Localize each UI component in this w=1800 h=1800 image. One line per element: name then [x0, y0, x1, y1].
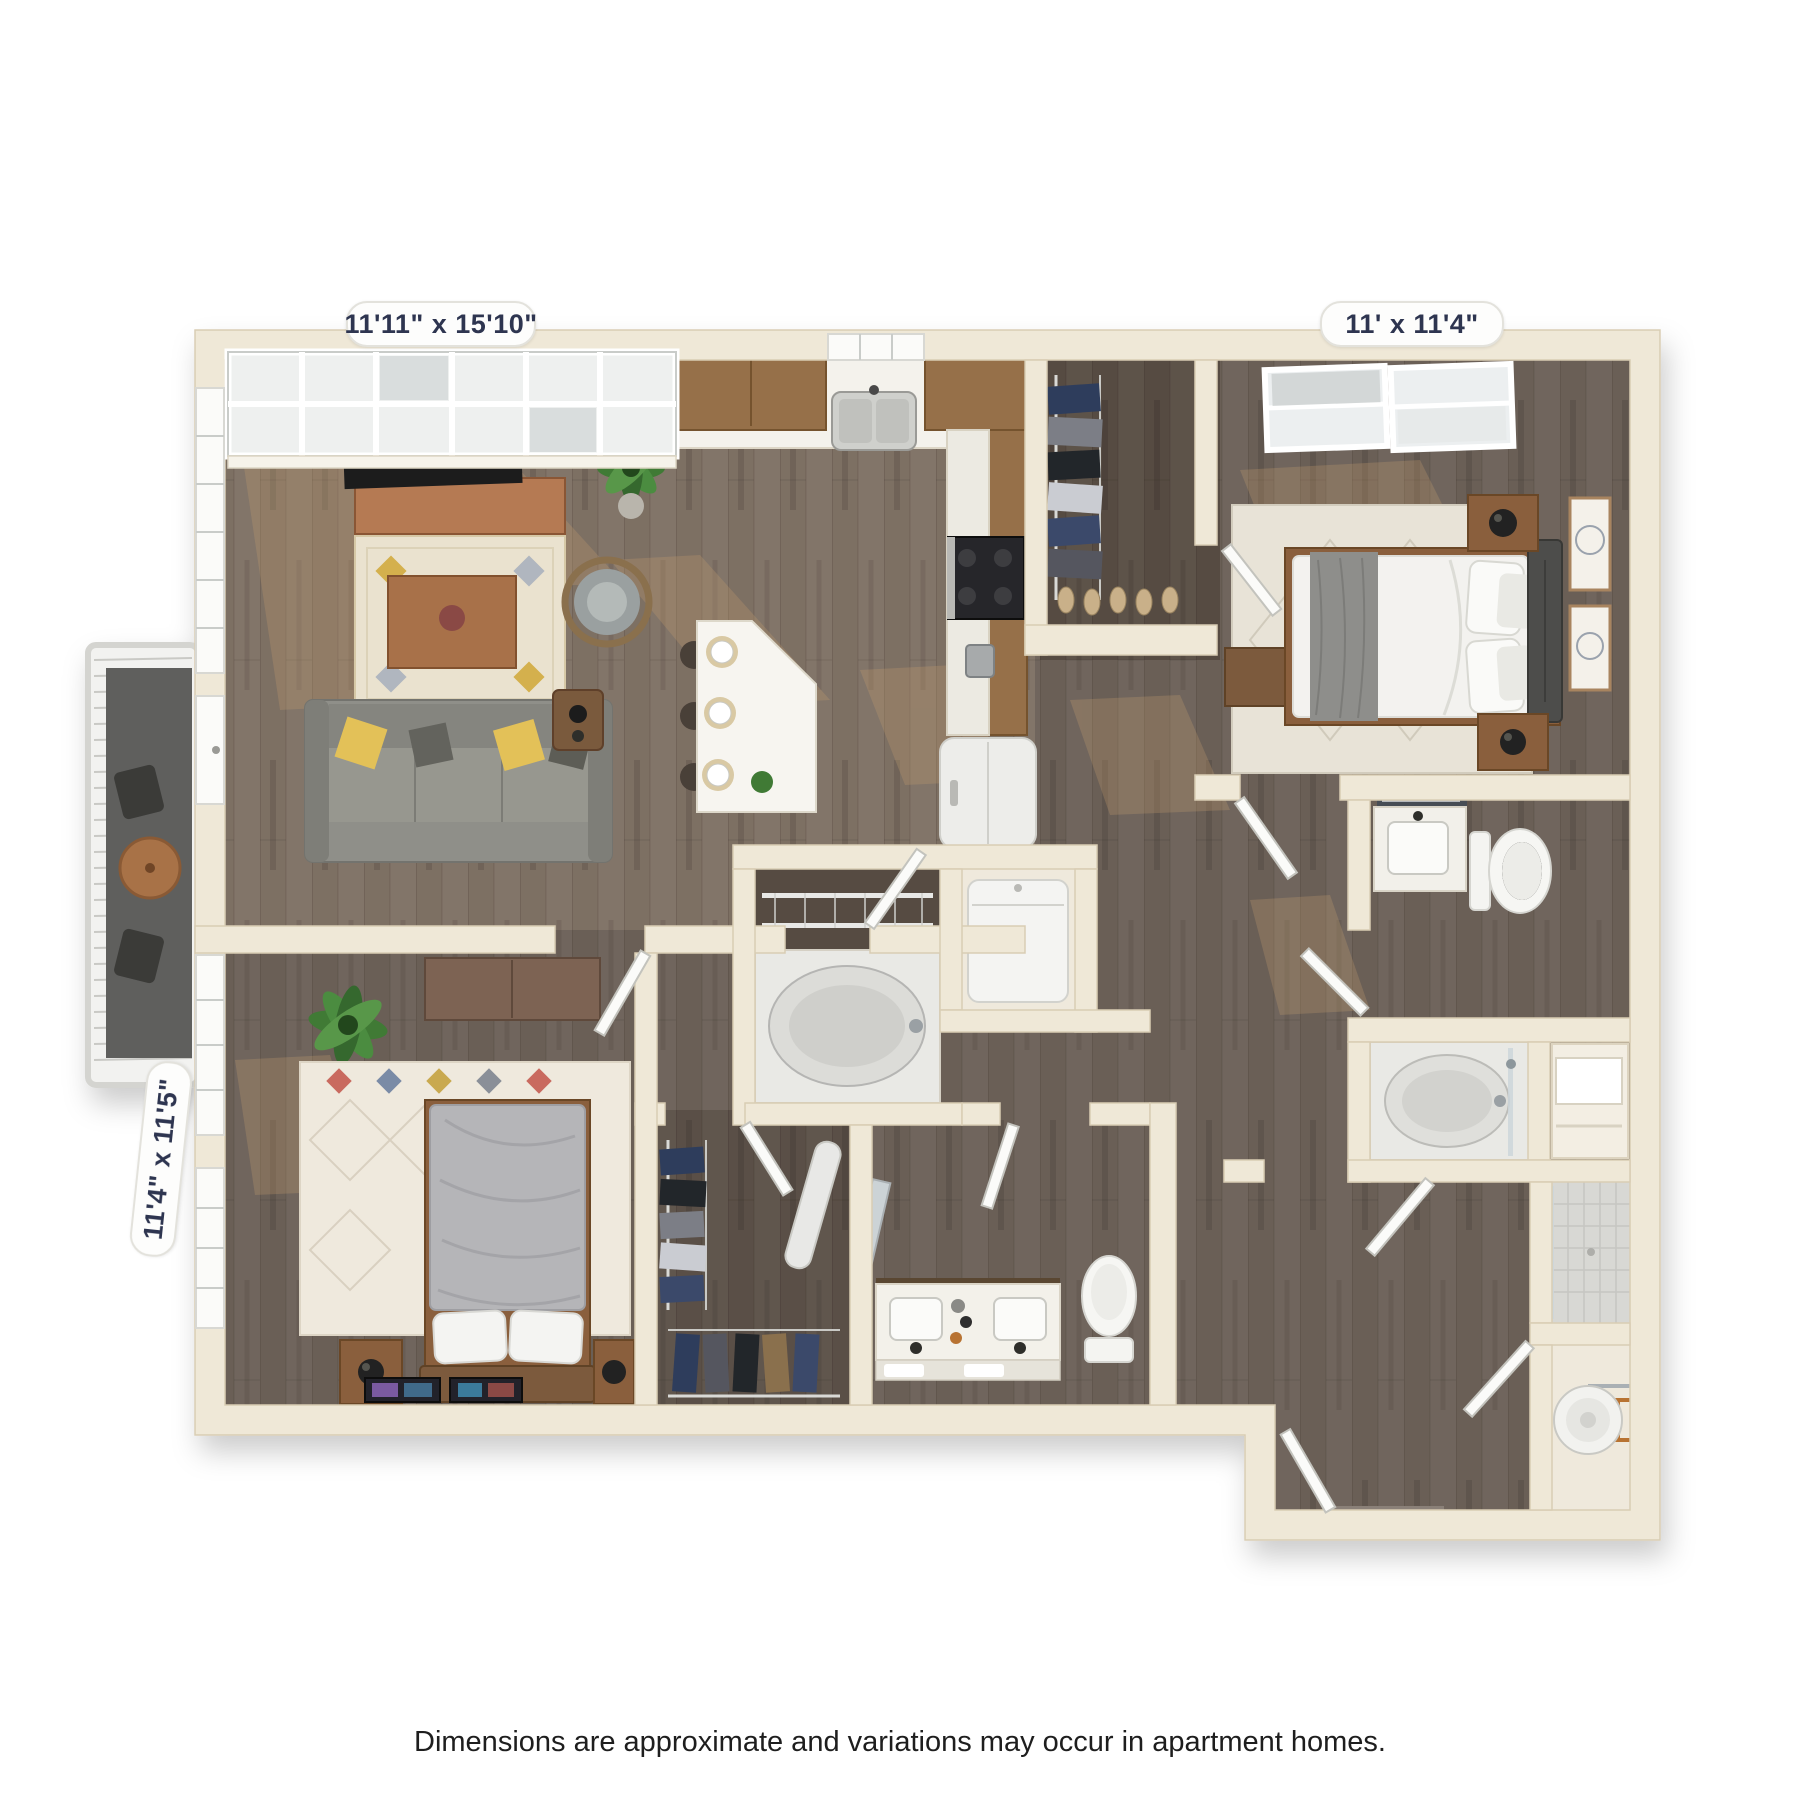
wall: [1348, 800, 1370, 930]
tub-faucet: [1494, 1095, 1506, 1107]
glass-pane-shaded: [1397, 406, 1506, 444]
wall: [195, 926, 555, 953]
faucet: [1413, 811, 1423, 821]
balcony-table-center: [145, 863, 155, 873]
towel: [964, 1364, 1004, 1377]
floorplan-image: 11'11" x 15'10" 11' x 11'4" 11'4" x 11'5…: [0, 0, 1800, 1800]
wall: [1528, 1042, 1550, 1160]
toilet: [1470, 829, 1551, 913]
wall: [1090, 1103, 1150, 1125]
faucet: [910, 1342, 922, 1354]
wall: [1195, 775, 1240, 800]
wall: [962, 1103, 1000, 1125]
kitchen-window: [828, 334, 924, 360]
place-setting: [706, 636, 738, 668]
skylight: [1391, 364, 1514, 450]
shower-head: [1506, 1059, 1516, 1069]
dimension-label-bedroom-right: 11' x 11'4": [1320, 301, 1504, 347]
glass-pane-shaded: [1271, 370, 1380, 406]
shower-drain: [1587, 1248, 1595, 1256]
fridge: [940, 738, 1036, 848]
window: [196, 955, 224, 1135]
toilet: [1082, 1256, 1136, 1362]
wall: [1530, 1323, 1630, 1345]
table-lamp: [1500, 729, 1526, 755]
table-lamp: [1489, 509, 1517, 537]
shower-stall: [1548, 1182, 1630, 1323]
pillow: [433, 1310, 508, 1364]
sink: [890, 1298, 942, 1340]
balcony: [88, 645, 198, 1085]
shelf-box: [1556, 1058, 1622, 1104]
kitchen-faucet: [869, 385, 879, 395]
wire-shelf: [762, 893, 933, 898]
vanity: [1374, 807, 1466, 891]
skylight: [1265, 366, 1388, 450]
sink: [1388, 822, 1448, 874]
dimension-label-living: 11'11" x 15'10": [346, 301, 536, 347]
dimension-text: 11'4" x 11'5": [137, 1077, 185, 1241]
floorplan-drawing: [0, 0, 1800, 1800]
door-handle: [212, 746, 220, 754]
wall: [1348, 1160, 1630, 1182]
wall: [940, 1010, 1150, 1032]
island-plant: [751, 771, 773, 793]
nightstand: [594, 1340, 634, 1404]
wall: [940, 869, 962, 1010]
coffee-maker: [966, 645, 994, 677]
nightstand: [1468, 495, 1538, 551]
wall: [1530, 1182, 1552, 1323]
hanging-clothes: [672, 1333, 819, 1393]
coffee-table-centerpiece: [439, 605, 465, 631]
wall: [1224, 1160, 1264, 1182]
disclaimer-text: Dimensions are approximate and variation…: [0, 1726, 1800, 1759]
hanging-clothes: [659, 1146, 707, 1303]
table-lamp: [602, 1360, 626, 1384]
washer-dial: [1014, 884, 1022, 892]
conservatory-glazing: [228, 352, 676, 468]
side-table: [553, 690, 603, 750]
window-sill: [228, 456, 676, 468]
bed: [1285, 540, 1562, 725]
glass-pane-shaded: [380, 356, 448, 400]
linen-niche-right: [1552, 1044, 1628, 1158]
nightstand: [1478, 714, 1548, 770]
wall: [1150, 1103, 1176, 1405]
wall: [745, 1103, 962, 1125]
wall: [1195, 360, 1217, 545]
window: [196, 388, 224, 673]
wall: [635, 953, 657, 1405]
double-vanity: [876, 1278, 1060, 1380]
sink: [994, 1298, 1046, 1340]
bed: [420, 1100, 595, 1402]
towel: [884, 1364, 924, 1377]
tub-alcove-center: [755, 950, 940, 1103]
place-setting: [702, 759, 734, 791]
tub-faucet: [909, 1019, 923, 1033]
faucet: [1014, 1342, 1026, 1354]
wall: [1340, 775, 1630, 800]
glass-pane-shaded: [530, 408, 596, 452]
duvet: [430, 1105, 585, 1310]
kitchen-sink: [832, 385, 916, 450]
tub-alcove-right: [1370, 1042, 1545, 1160]
window: [196, 1168, 224, 1328]
wall: [1025, 625, 1217, 655]
wall: [850, 1125, 872, 1405]
pillow: [509, 1310, 584, 1364]
wall: [1025, 360, 1047, 655]
sofa-pillow-gray: [408, 722, 453, 767]
wall: [1530, 1345, 1552, 1510]
plant-vase: [618, 493, 644, 519]
wall: [645, 926, 785, 953]
accent-chair: [565, 560, 649, 644]
wall: [1075, 869, 1097, 1032]
wall: [733, 869, 755, 1125]
dimension-text: 11'11" x 15'10": [344, 309, 537, 340]
place-setting: [704, 697, 736, 729]
water-heater-closet: [1552, 1345, 1630, 1510]
stove: [947, 537, 1024, 619]
wall: [1348, 1018, 1630, 1042]
dimension-text: 11' x 11'4": [1345, 309, 1478, 340]
